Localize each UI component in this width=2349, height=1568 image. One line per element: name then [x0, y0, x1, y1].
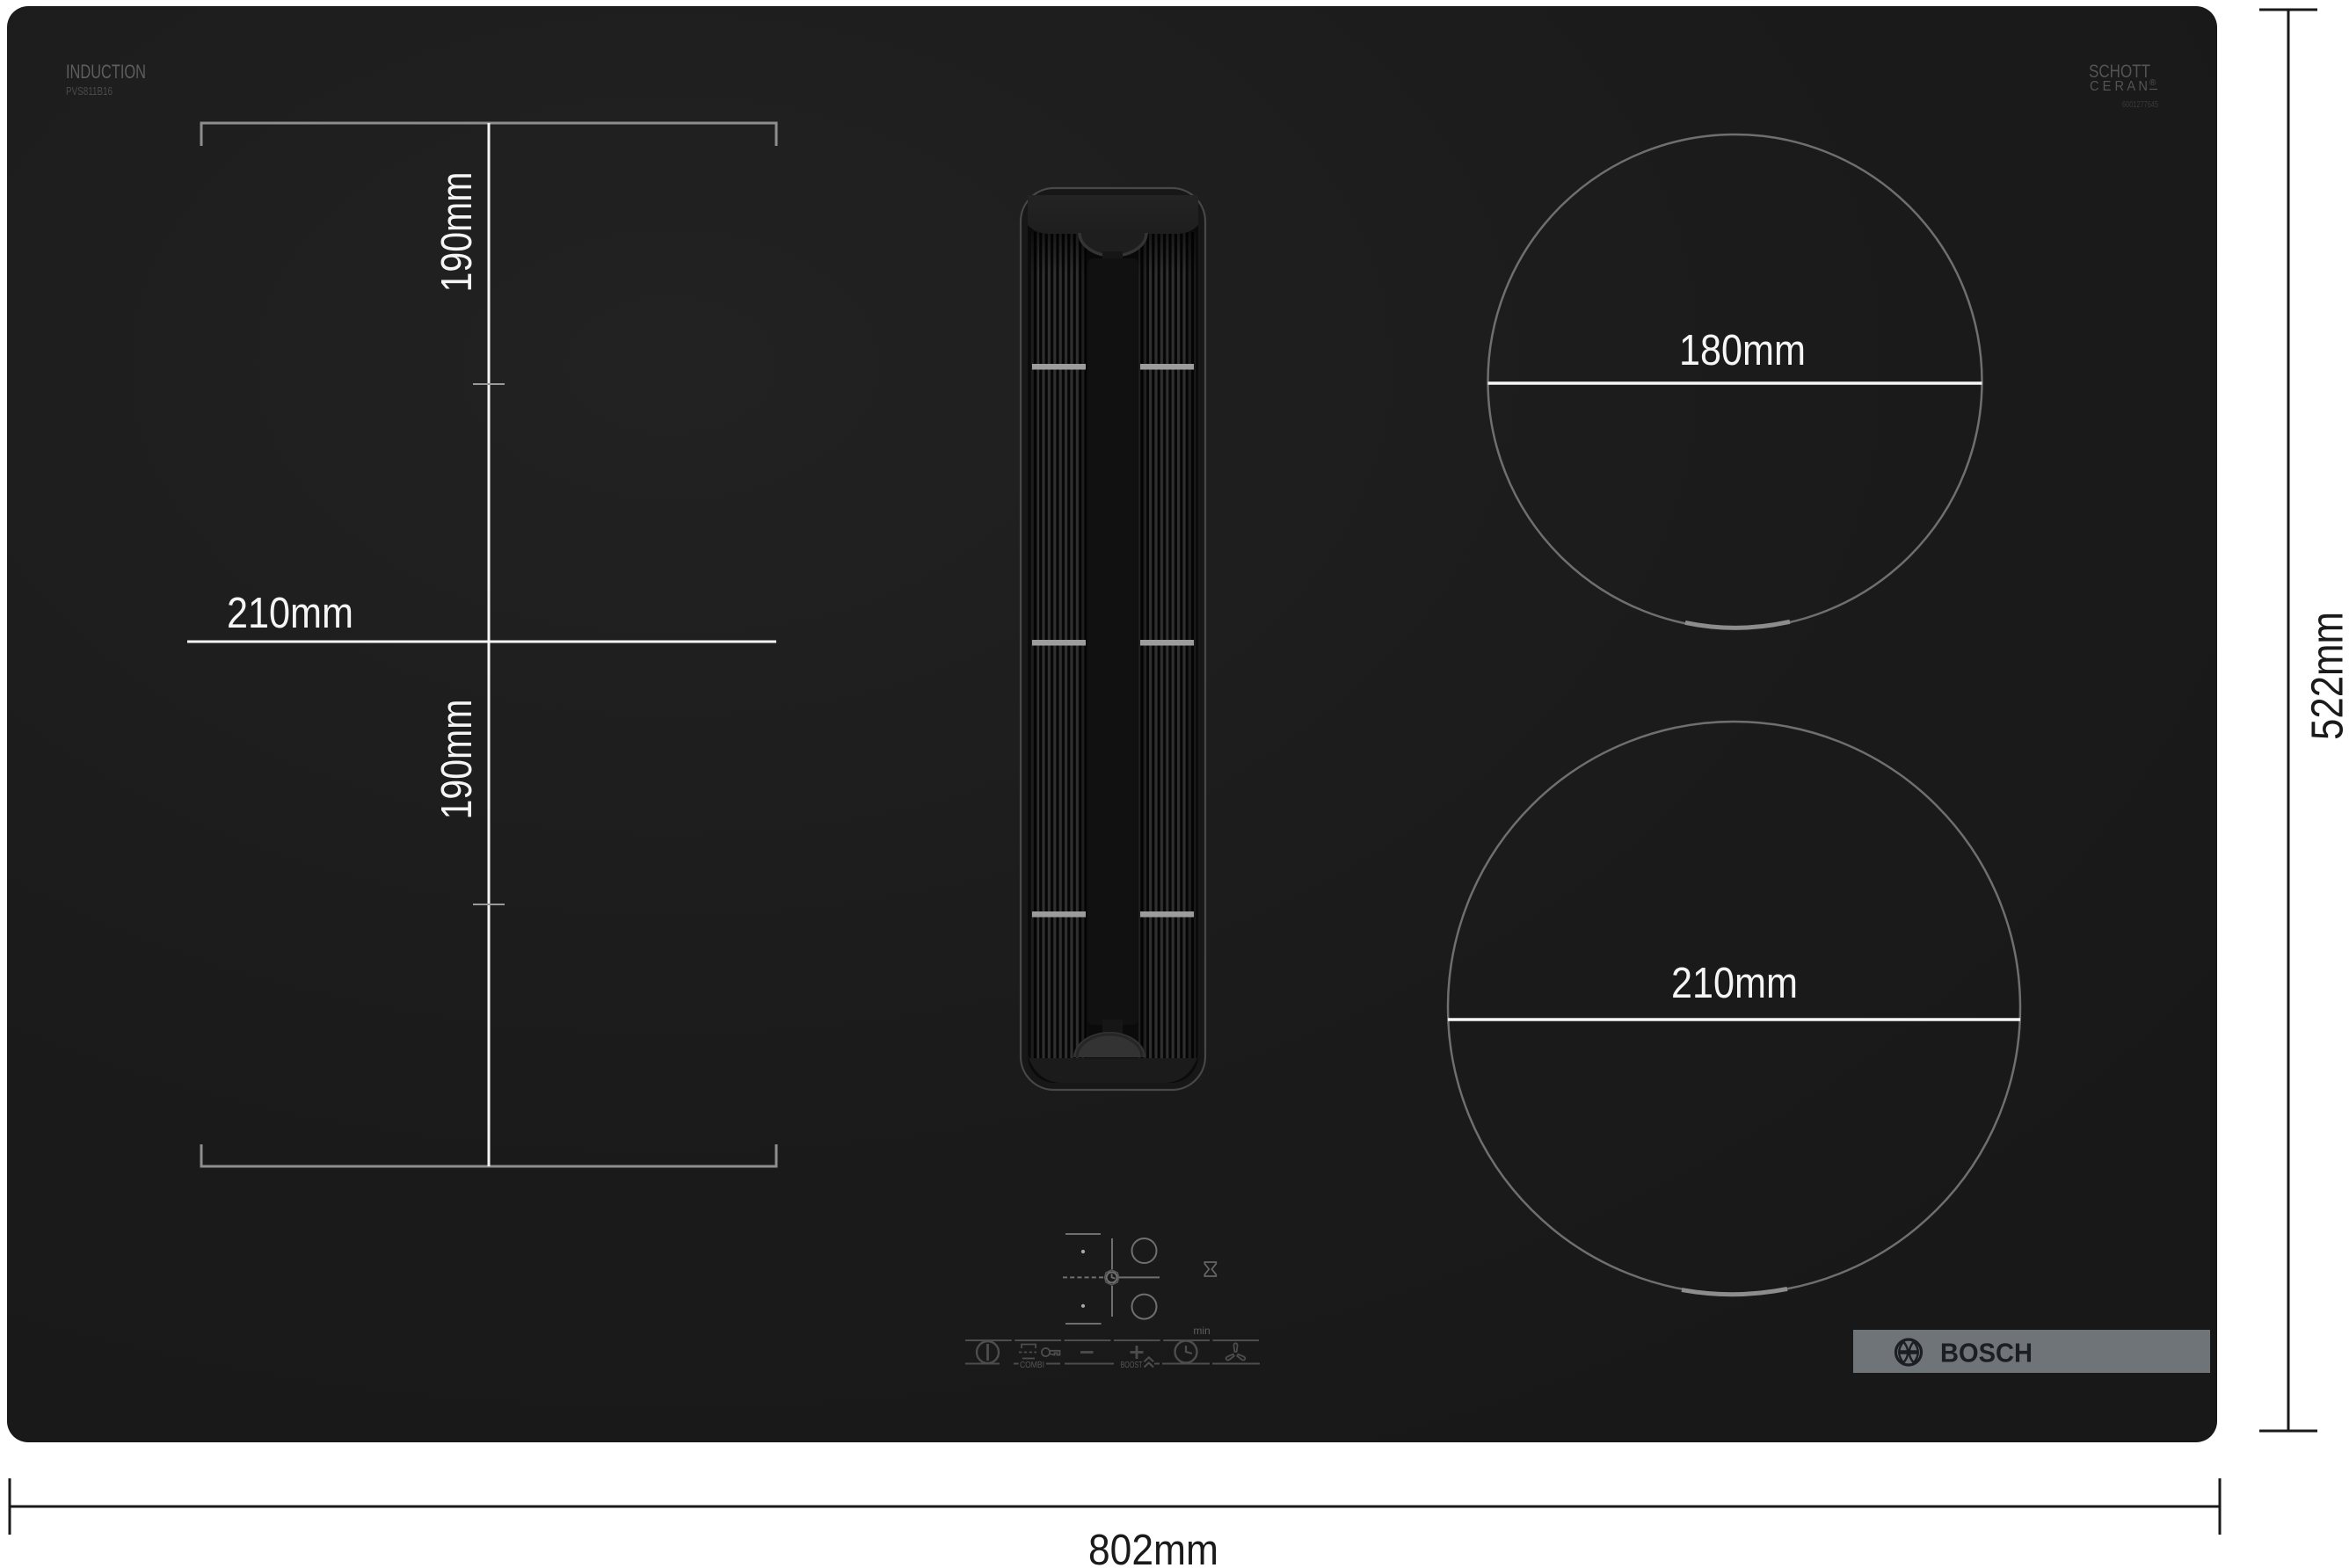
svg-text:802mm: 802mm [1088, 1527, 1218, 1568]
svg-text:180mm: 180mm [1679, 327, 1806, 374]
svg-text:min: min [1193, 1325, 1210, 1337]
svg-text:C E R A N: C E R A N [2090, 79, 2148, 94]
svg-text:COMBI: COMBI [1020, 1361, 1044, 1370]
svg-text:190mm: 190mm [433, 700, 481, 820]
svg-text:210mm: 210mm [227, 590, 353, 637]
svg-text:BOSCH: BOSCH [1940, 1338, 2033, 1368]
svg-text:BOOST: BOOST [1121, 1361, 1143, 1370]
svg-text:®: ® [2149, 78, 2156, 88]
svg-text:190mm: 190mm [433, 172, 481, 293]
svg-text:210mm: 210mm [1671, 960, 1798, 1007]
svg-text:PVS811B16: PVS811B16 [66, 84, 113, 98]
svg-text:522mm: 522mm [2302, 612, 2349, 740]
svg-text:INDUCTION: INDUCTION [66, 61, 146, 83]
svg-text:6001277645: 6001277645 [2122, 100, 2158, 110]
